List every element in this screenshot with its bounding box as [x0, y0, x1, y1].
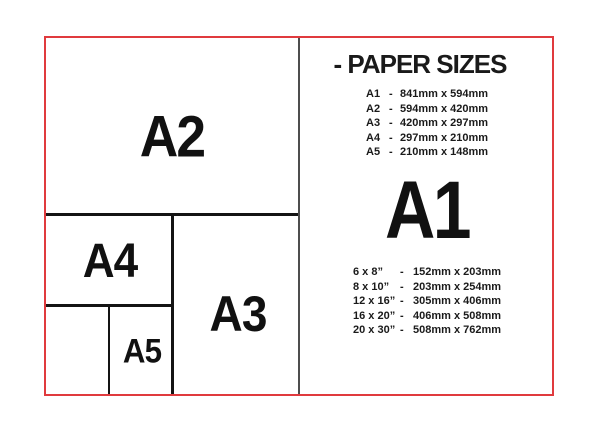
- size-name: 6 x 8”: [353, 265, 400, 280]
- size-name: 12 x 16”: [353, 294, 400, 309]
- panel-title: - PAPER SIZES: [300, 51, 540, 77]
- size-dimensions: 297mm x 210mm: [400, 131, 488, 146]
- inch-sizes-list: 6 x 8” - 152mm x 203mm 8 x 10” - 203mm x…: [353, 265, 501, 338]
- a-size-row: A1 - 841mm x 594mm: [366, 87, 488, 102]
- size-separator: -: [400, 280, 413, 295]
- size-dimensions: 508mm x 762mm: [413, 323, 501, 338]
- size-name: A1: [366, 87, 389, 102]
- size-dimensions: 841mm x 594mm: [400, 87, 488, 102]
- size-dimensions: 406mm x 508mm: [413, 309, 501, 324]
- a-sizes-list: A1 - 841mm x 594mm A2 - 594mm x 420mm A3…: [366, 87, 488, 160]
- featured-size-label: A1: [319, 170, 535, 252]
- size-separator: -: [389, 87, 400, 102]
- paper-box-a4-label: A4: [83, 238, 138, 286]
- size-name: A4: [366, 131, 389, 146]
- paper-sizes-diagram: A2 A4 A3 A5 - PAPER SIZES A1 - 841mm x 5…: [0, 0, 600, 424]
- size-name: A2: [366, 102, 389, 117]
- size-dimensions: 594mm x 420mm: [400, 102, 488, 117]
- size-dimensions: 210mm x 148mm: [400, 145, 488, 160]
- size-separator: -: [389, 116, 400, 131]
- size-name: A3: [366, 116, 389, 131]
- size-separator: -: [389, 131, 400, 146]
- size-separator: -: [400, 265, 413, 280]
- a4-bottom-line: [46, 304, 174, 307]
- inch-size-row: 12 x 16” - 305mm x 406mm: [353, 294, 501, 309]
- panel-divider-line: [298, 38, 300, 394]
- inch-size-row: 20 x 30” - 508mm x 762mm: [353, 323, 501, 338]
- a-size-row: A4 - 297mm x 210mm: [366, 131, 488, 146]
- size-name: 8 x 10”: [353, 280, 400, 295]
- size-dimensions: 305mm x 406mm: [413, 294, 501, 309]
- size-separator: -: [389, 145, 400, 160]
- size-separator: -: [400, 323, 413, 338]
- size-dimensions: 203mm x 254mm: [413, 280, 501, 295]
- size-separator: -: [389, 102, 400, 117]
- size-dimensions: 152mm x 203mm: [413, 265, 501, 280]
- size-separator: -: [400, 309, 413, 324]
- paper-box-a5-label: A5: [123, 334, 161, 368]
- paper-box-a3-label: A3: [210, 289, 267, 339]
- size-separator: -: [400, 294, 413, 309]
- paper-box-a2-label: A2: [140, 108, 205, 166]
- size-name: 16 x 20”: [353, 309, 400, 324]
- size-name: A5: [366, 145, 389, 160]
- a-size-row: A2 - 594mm x 420mm: [366, 102, 488, 117]
- inch-size-row: 6 x 8” - 152mm x 203mm: [353, 265, 501, 280]
- inch-size-row: 8 x 10” - 203mm x 254mm: [353, 280, 501, 295]
- size-name: 20 x 30”: [353, 323, 400, 338]
- a5-left-line: [108, 307, 110, 394]
- size-dimensions: 420mm x 297mm: [400, 116, 488, 131]
- a-size-row: A5 - 210mm x 148mm: [366, 145, 488, 160]
- inch-size-row: 16 x 20” - 406mm x 508mm: [353, 309, 501, 324]
- a-size-row: A3 - 420mm x 297mm: [366, 116, 488, 131]
